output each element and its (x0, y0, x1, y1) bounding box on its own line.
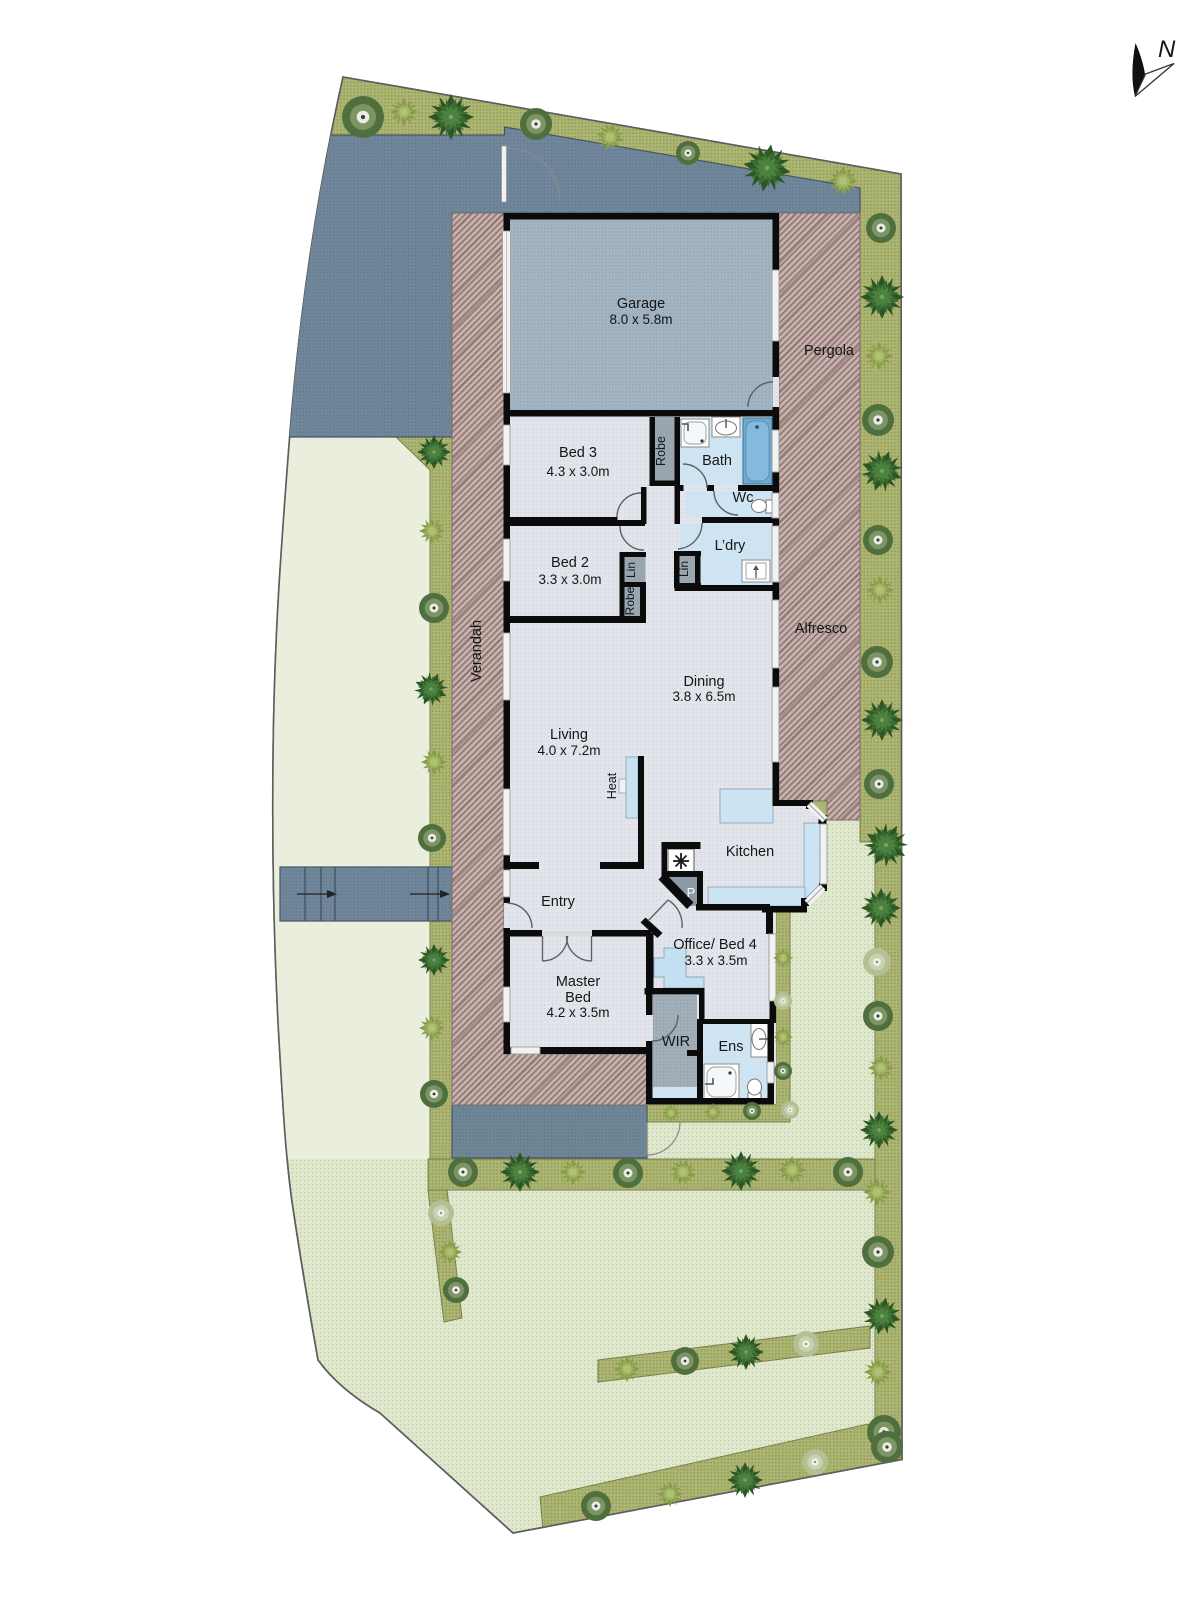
svg-text:Entry: Entry (541, 894, 576, 910)
svg-text:WIR: WIR (662, 1034, 690, 1050)
svg-text:Lin: Lin (677, 561, 691, 577)
svg-text:4.0 x 7.2m: 4.0 x 7.2m (537, 743, 600, 758)
svg-text:3.3 x 3.0m: 3.3 x 3.0m (538, 572, 601, 587)
svg-text:Garage: Garage (617, 296, 665, 312)
svg-text:Kitchen: Kitchen (726, 844, 774, 860)
svg-text:8.0 x 5.8m: 8.0 x 5.8m (609, 312, 672, 327)
svg-text:Verandah: Verandah (469, 620, 485, 682)
svg-text:Pergola: Pergola (804, 343, 855, 359)
svg-text:Alfresco: Alfresco (795, 621, 847, 637)
svg-text:Robe: Robe (654, 436, 668, 466)
svg-text:Lin: Lin (624, 562, 638, 578)
svg-text:4.2 x 3.5m: 4.2 x 3.5m (546, 1005, 609, 1020)
svg-text:L’dry: L’dry (715, 538, 746, 554)
svg-text:P: P (687, 885, 696, 900)
svg-text:Living: Living (550, 727, 588, 743)
svg-text:Bed 2: Bed 2 (551, 555, 589, 571)
svg-text:Bed 3: Bed 3 (559, 445, 597, 461)
svg-text:Robe: Robe (623, 586, 637, 615)
svg-text:3.8 x 6.5m: 3.8 x 6.5m (672, 689, 735, 704)
svg-text:3.3 x 3.5m: 3.3 x 3.5m (684, 953, 747, 968)
svg-text:Office/ Bed 4: Office/ Bed 4 (673, 937, 757, 953)
svg-text:Heat: Heat (605, 772, 619, 799)
svg-text:Wc: Wc (733, 490, 754, 506)
svg-text:Master: Master (556, 974, 600, 990)
svg-text:4.3 x 3.0m: 4.3 x 3.0m (546, 464, 609, 479)
svg-text:Ens: Ens (719, 1039, 744, 1055)
svg-text:N: N (1158, 36, 1176, 63)
svg-text:Bed: Bed (565, 990, 591, 1006)
svg-text:Dining: Dining (683, 674, 724, 690)
svg-text:Bath: Bath (702, 453, 732, 469)
